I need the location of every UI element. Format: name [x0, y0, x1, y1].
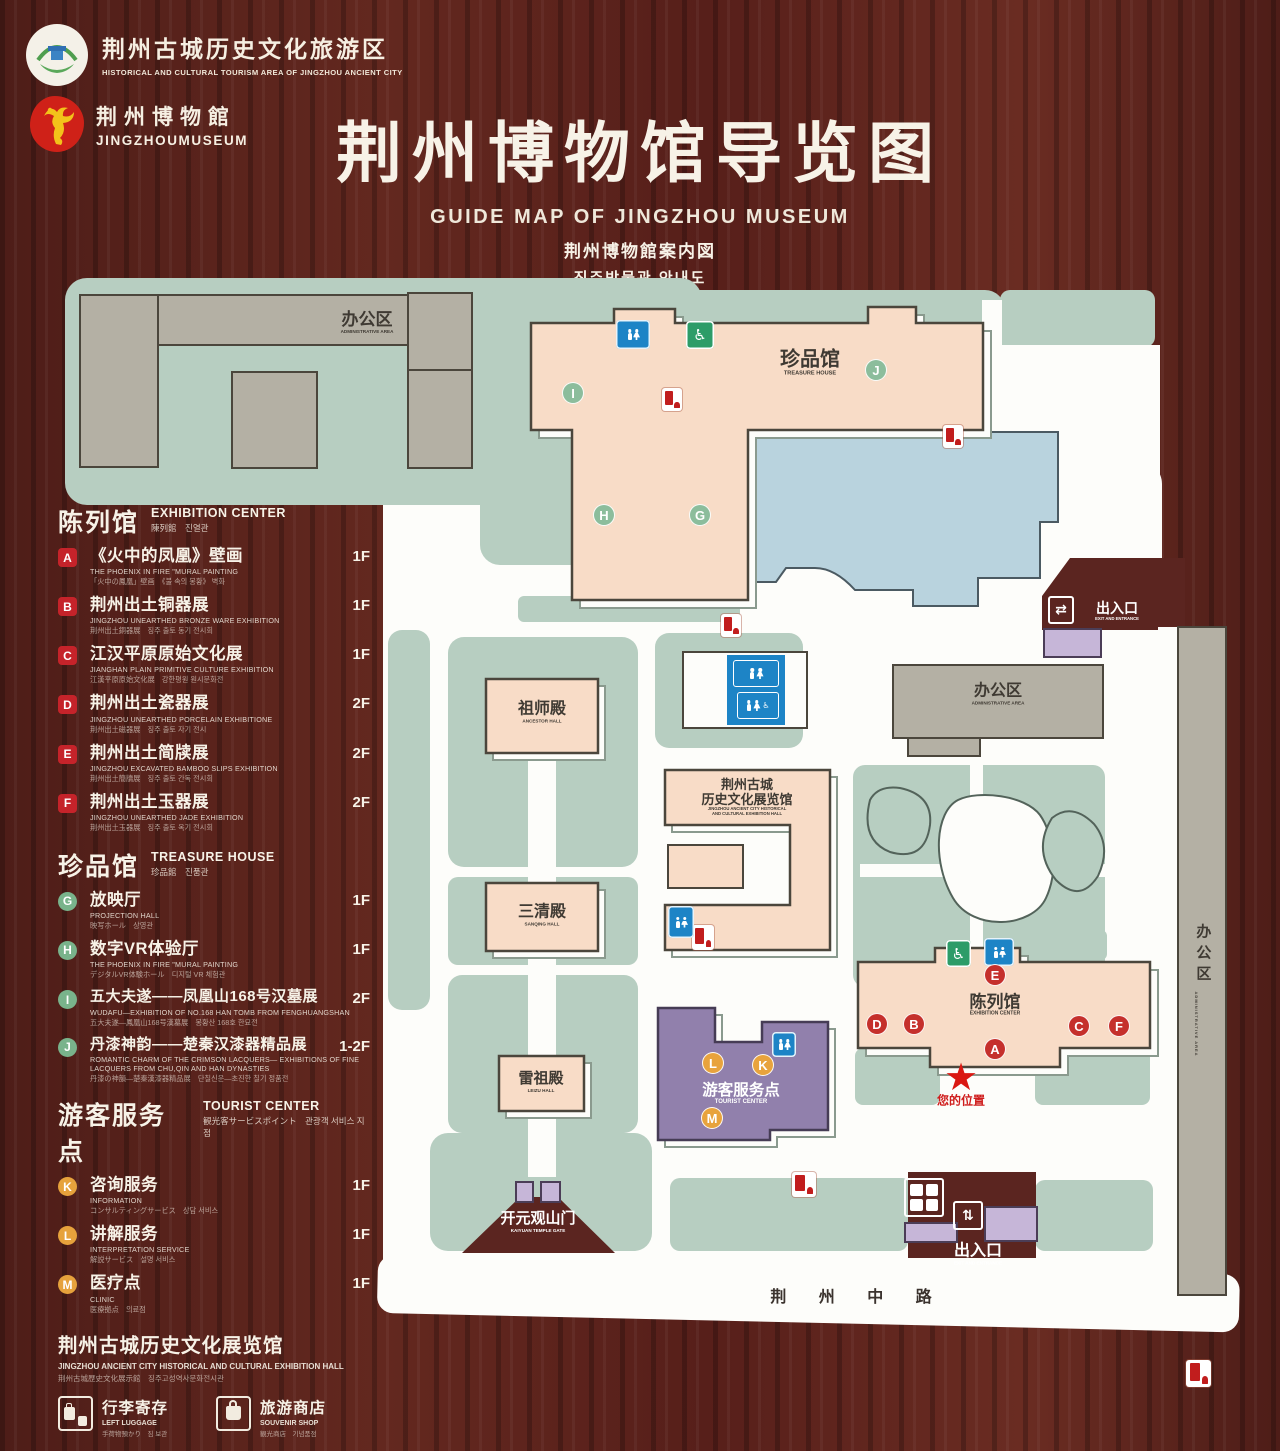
restroom-icon	[984, 938, 1014, 966]
elevator-icon	[1186, 1360, 1211, 1387]
legend-item-I: I 五大夫遂——凤凰山168号汉墓展 WUDAFU—EXHIBITION OF …	[58, 989, 370, 1028]
marker-L: L	[702, 1052, 724, 1074]
label-admin-area-e: 办公区ADMINISTRATIVE AREA	[972, 682, 1025, 705]
badge-F: F	[58, 794, 77, 813]
label-road: 荆 州 中 路	[770, 1289, 945, 1307]
label-kaiyuan-gate: 开元观山门KAIYUAN TEMPLE GATE	[500, 1211, 575, 1233]
legend-item-K: K 咨询服务 INFORMATION コンサルティングサービス 상담 서비스 1…	[58, 1176, 370, 1216]
marker-J: J	[865, 359, 887, 381]
accessible-elevator-icon: ♿	[686, 321, 714, 349]
legend-item-L: L 讲解服务 INTERPRETATION SERVICE 解説サービス 설명 …	[58, 1225, 370, 1265]
marker-G: G	[689, 504, 711, 526]
badge-M: M	[58, 1275, 77, 1294]
badge-K: K	[58, 1177, 77, 1196]
label-sanqing-hall: 三清殿SANQING HALL	[518, 903, 566, 926]
marker-A: A	[984, 1038, 1006, 1060]
marker-F: F	[1108, 1015, 1130, 1037]
marker-I: I	[562, 382, 584, 404]
legend-item-F: F 荆州出土玉器展 JINGZHOU UNEARTHED JADE EXHIBI…	[58, 793, 370, 833]
escalator-icon	[721, 614, 741, 637]
restroom-icon	[616, 320, 650, 349]
badge-I: I	[58, 990, 77, 1009]
label-exhibition-hall: 荆州古城 历史文化展览馆 JINGZHOU ANCIENT CITY HISTO…	[701, 778, 792, 817]
legend-item-H: H 数字VR体验厅 THE PHOENIX IN FIRE "MURAL PAI…	[58, 940, 370, 980]
legend-item-A: A 《火中的凤凰》壁画 THE PHOENIX IN FIRE "MURAL P…	[58, 547, 370, 587]
facility-legend: 行李寄存LEFT LUGGAGE手荷物預かり 짐 보관 旅游商店SOUVENIR…	[58, 1396, 370, 1451]
label-leizu-hall: 雷祖殿LEIZU HALL	[518, 1071, 563, 1093]
legend-item-B: B 荆州出土铜器展 JINGZHOU UNEARTHED BRONZE WARE…	[58, 596, 370, 636]
legend-section-treasure-house: 珍品馆 TREASURE HOUSE 珍品館 진품관	[58, 847, 370, 883]
badge-D: D	[58, 695, 77, 714]
exit-icon: ⇅	[953, 1201, 983, 1230]
badge-A: A	[58, 548, 77, 567]
marker-H: H	[593, 504, 615, 526]
restroom-icon	[733, 660, 779, 687]
badge-J: J	[58, 1038, 77, 1057]
badge-G: G	[58, 892, 77, 911]
escalator-icon	[943, 425, 963, 448]
marker-K: K	[752, 1054, 774, 1076]
marker-M: M	[701, 1107, 723, 1129]
accessible-elevator-icon: ♿	[946, 940, 971, 967]
your-location-star-icon: ★	[944, 1058, 978, 1096]
legend-item-J: J 丹漆神韵——楚秦汉漆器精品展 ROMANTIC CHARM OF THE C…	[58, 1037, 370, 1085]
restroom-icon	[772, 1032, 796, 1057]
marker-C: C	[1068, 1015, 1090, 1037]
legend-item-C: C 江汉平原原始文化展 JIANGHAN PLAIN PRIMITIVE CUL…	[58, 645, 370, 685]
label-ancestor-hall: 祖师殿ANCESTOR HALL	[518, 700, 566, 723]
escalator-icon	[662, 388, 682, 411]
label-treasure-house: 珍品馆TREASURE HOUSE	[780, 349, 840, 378]
elevator-icon	[692, 925, 714, 950]
label-exhibition-center: 陈列馆EXHIBITION CENTER	[970, 993, 1021, 1018]
legend-section-exhibition-center: 陈列馆 EXHIBITION CENTER 陳列館 진열관	[58, 503, 370, 539]
map-legend: 陈列馆 EXHIBITION CENTER 陳列館 진열관 A 《火中的凤凰》壁…	[58, 503, 370, 1451]
legend-item-G: G 放映厅 PROJECTION HALL 映写ホール 상영관 1F	[58, 891, 370, 931]
elevator-icon	[792, 1172, 816, 1197]
label-exit-bottom: 出入口EXIT AND ENTRANCE	[954, 1242, 1002, 1265]
facility-left-luggage: 行李寄存LEFT LUGGAGE手荷物預かり 짐 보관	[58, 1396, 216, 1438]
guide-map-board: 荆州古城历史文化旅游区 HISTORICAL AND CULTURAL TOUR…	[0, 0, 1280, 1451]
restroom-icon	[668, 906, 694, 938]
marker-E: E	[984, 964, 1006, 986]
marker-B: B	[903, 1013, 925, 1035]
marker-D: D	[866, 1013, 888, 1035]
legend-item-M: M 医疗点 CLINIC 医療拠点 의료점 1F	[58, 1274, 370, 1314]
luggage-icon	[58, 1396, 93, 1431]
family-restroom-icon: ♿	[737, 692, 779, 719]
label-admin-area-nw: 办公区ADMINISTRATIVE AREA	[341, 310, 394, 334]
badge-B: B	[58, 597, 77, 616]
label-admin-area-strip: 办公区 ADMINISTRATIVE AREA	[1194, 924, 1211, 1057]
legend-item-D: D 荆州出土瓷器展 JINGZHOU UNEARTHED PORCELAIN E…	[58, 694, 370, 734]
badge-L: L	[58, 1226, 77, 1245]
badge-C: C	[58, 646, 77, 665]
badge-E: E	[58, 745, 77, 764]
left-luggage-icon	[904, 1178, 944, 1217]
legend-section-tourist-center: 游客服务点 TOURIST CENTER 観光客サービスポイント 관광객 서비스…	[58, 1096, 370, 1168]
legend-item-E: E 荆州出土简牍展 JINGZHOU EXCAVATED BAMBOO SLIP…	[58, 744, 370, 784]
shop-icon	[216, 1396, 251, 1431]
legend-hall-note: 荆州古城历史文化展览馆 JINGZHOU ANCIENT CITY HISTOR…	[58, 1329, 370, 1384]
label-exit-top: 出入口EXIT AND ENTRANCE	[1095, 601, 1139, 621]
badge-H: H	[58, 941, 77, 960]
exit-icon: ⇄	[1048, 596, 1074, 624]
label-tourist-center: 游客服务点TOURIST CENTER	[702, 1082, 780, 1106]
facility-souvenir-shop: 旅游商店SOUVENIR SHOP観光商店 기념품점	[216, 1396, 370, 1438]
